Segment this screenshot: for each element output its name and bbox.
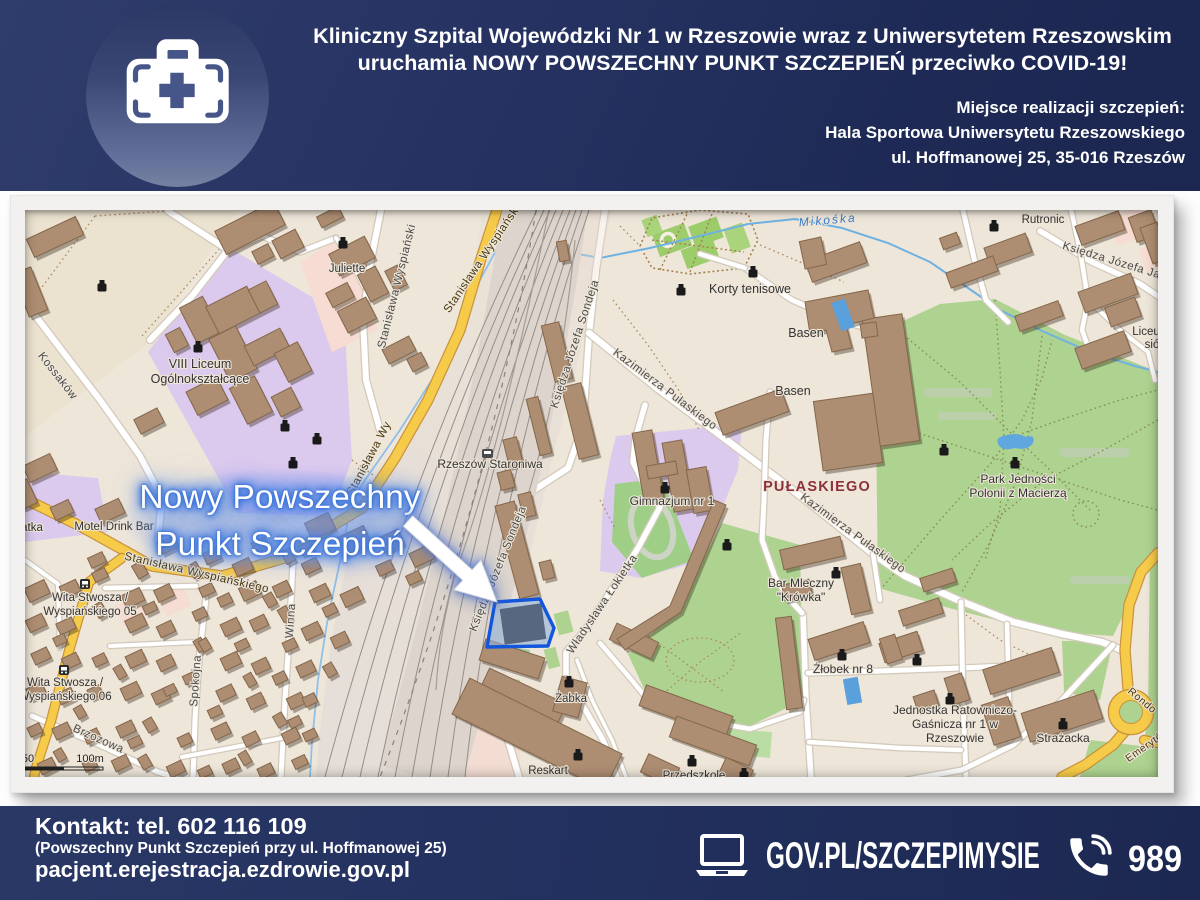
svg-text:Żabka: Żabka bbox=[555, 692, 588, 705]
svg-text:PUŁASKIEGO: PUŁASKIEGO bbox=[763, 479, 871, 495]
svg-text:Liceu: Liceu bbox=[1132, 326, 1158, 338]
svg-text:Wita Stwosza /: Wita Stwosza / bbox=[52, 592, 129, 604]
svg-text:Wyspiańskiego 06: Wyspiańskiego 06 bbox=[25, 691, 112, 703]
svg-text:Wita Stwosza /: Wita Stwosza / bbox=[27, 677, 104, 689]
svg-text:Ogólnokształcące: Ogólnokształcące bbox=[151, 372, 250, 386]
svg-text:Przedszkole: Przedszkole bbox=[663, 770, 726, 777]
svg-text:"Krówka": "Krówka" bbox=[777, 590, 826, 604]
svg-text:100m: 100m bbox=[76, 753, 104, 765]
svg-text:Korty tenisowe: Korty tenisowe bbox=[709, 282, 791, 296]
svg-text:Winna: Winna bbox=[284, 603, 298, 639]
svg-text:Juliette: Juliette bbox=[329, 263, 365, 275]
svg-text:VIII Liceum: VIII Liceum bbox=[169, 357, 232, 371]
svg-text:Park Jedności: Park Jedności bbox=[980, 472, 1055, 486]
svg-text:Żłobek nr 8: Żłobek nr 8 bbox=[813, 662, 873, 676]
svg-text:Wyspiańskiego 05: Wyspiańskiego 05 bbox=[43, 606, 136, 618]
svg-text:Gaśnicza nr 1 w: Gaśnicza nr 1 w bbox=[912, 717, 998, 731]
svg-text:Reskart: Reskart bbox=[528, 765, 568, 777]
svg-text:Rzeszowie: Rzeszowie bbox=[926, 731, 984, 745]
svg-text:atka: atka bbox=[25, 522, 43, 534]
svg-text:Basen: Basen bbox=[788, 326, 823, 340]
svg-text:Gimnazjum nr 1: Gimnazjum nr 1 bbox=[630, 494, 715, 508]
svg-text:Rutronic: Rutronic bbox=[1022, 214, 1065, 226]
svg-text:sió: sió bbox=[1145, 339, 1158, 351]
svg-text:Jednostka Ratowniczo-: Jednostka Ratowniczo- bbox=[893, 703, 1017, 717]
svg-text:50: 50 bbox=[25, 753, 34, 765]
svg-text:Bar Mleczny: Bar Mleczny bbox=[768, 576, 834, 590]
svg-text:Polonii z Macierzą: Polonii z Macierzą bbox=[969, 486, 1067, 500]
svg-text:Strażacka: Strażacka bbox=[1036, 731, 1090, 745]
svg-text:Basen: Basen bbox=[775, 384, 810, 398]
